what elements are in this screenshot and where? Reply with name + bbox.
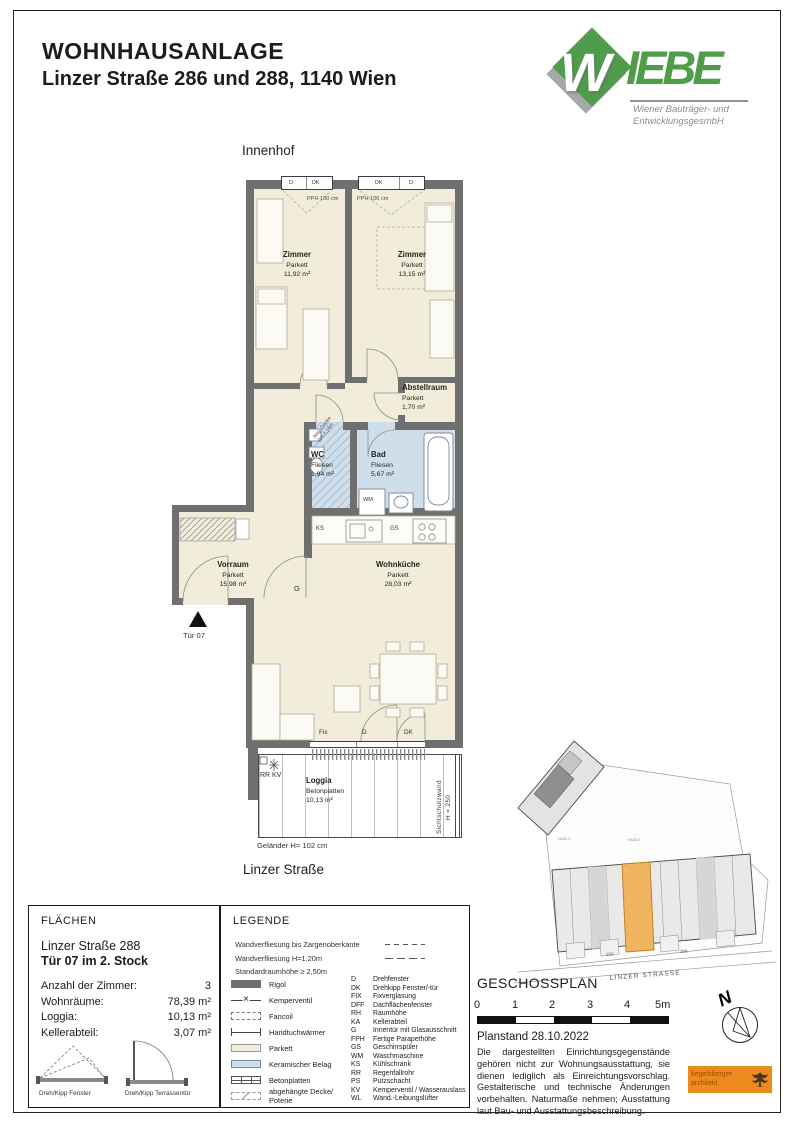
room-label-zimmer1: ZimmerParkett11,92 m² [262,250,332,280]
legende-item-label: Rigol [269,980,286,989]
legende-abbr-value: Innentür mit Glasausschnitt [373,1027,457,1036]
legende-abbr-key: WL [351,1095,373,1104]
compass-n-label: N [714,986,735,1010]
sichtschutz-height-label: H = 250 [445,775,452,820]
flaechen-row-value: 78,39 m² [168,996,211,1008]
legende-abbreviations: DDrehfensterDKDrehkipp Fenster/-türFIXFi… [351,976,469,1104]
legende-abbr-value: Kemperventil / Wasserauslass [373,1087,465,1096]
stamp-line1: hegelsberger [691,1071,751,1080]
towel-symbol-icon [231,1028,261,1036]
site-288-label: 288 [606,952,614,957]
legende-item-label: Parkett [269,1044,292,1053]
room-label-loggia: LoggiaBetonplatten10,13 m² [306,776,358,806]
legende-item: Handtuchwärmer [231,1024,349,1040]
legende-abbr-key: G [351,1027,373,1036]
legende-abbr-key: PS [351,1078,373,1087]
architect-stamp: hegelsberger architekt [688,1066,772,1093]
legende-item: Kemperventil [231,992,349,1008]
flaechen-row: Wohnräume:78,39 m² [41,996,211,1008]
legende-item: Betonplatten [231,1072,349,1088]
flaechen-title: FLÄCHEN [41,915,97,927]
legende-item: Rigol [231,976,349,992]
legende-abbr-row: FIXFixverglasung [351,993,469,1002]
pph-left-label: PPH 100 cm [307,196,338,202]
legende-abbr-value: Kühlschrank [373,1061,411,1070]
legende-item-label: Kemperventil [269,996,312,1005]
legende-abbr-row: RRRegenfallrohr [351,1070,469,1079]
legende-abbr-row: PSPutzschacht [351,1078,469,1087]
room-label-bad: BadFliesen5,67 m² [371,450,415,480]
ks-label: KS [316,526,324,532]
legende-item-label: Fancoil [269,1012,293,1021]
legende-abbr-row: WMWaschmaschine [351,1053,469,1062]
legende-note-text: Standardraumhöhe ≥ 2,50m [235,967,385,976]
legende-item: Keramischer Belag [231,1056,349,1072]
legende-abbr-key: GS [351,1044,373,1053]
legende-abbr-key: RH [351,1010,373,1019]
room-label-abstellraum: AbstellraumParkett1,70 m² [402,383,460,413]
door-symbol-caption: Dreh/Kipp Terrassentür [125,1090,191,1097]
legende-abbr-key: DFF [351,1002,373,1011]
room-label-zimmer2: ZimmerParkett13,15 m² [377,250,447,280]
tuer07-label: Tür 07 [183,631,205,640]
parkett-symbol-icon [231,1044,261,1052]
legende-item-label: Keramischer Belag [269,1060,331,1069]
legende-abbr-key: D [351,976,373,985]
legende-abbr-key: KS [351,1061,373,1070]
legende-abbr-row: RHRaumhöhe [351,1010,469,1019]
wm-label: WM [363,497,373,503]
beton-symbol-icon [231,1076,261,1084]
scale-tick-label: 2 [549,999,555,1011]
gelaender-label: Geländer H= 102 cm [257,841,327,850]
legende-item-label: abgehängte Decke/ Poterie [269,1087,349,1105]
legende-abbr-row: WLWand.-Leibungslüfter [351,1095,469,1104]
gs-label: GS [390,526,399,532]
loggia-door-d-label: D [362,729,367,736]
flaechen-row-label: Anzahl der Zimmer: [41,980,137,992]
flaechen-row-value: 10,13 m² [168,1011,211,1023]
flaechen-unit: Tür 07 im 2. Stock [41,954,148,968]
legende-abbr-key: FPH [351,1036,373,1045]
room-label-wc: WCFliesen1,94 m² [311,450,351,480]
flaechen-row-label: Kellerabteil: [41,1027,98,1039]
eagle-icon [751,1071,769,1088]
legende-abbr-value: Fixverglasung [373,993,416,1002]
rigol-symbol-icon [231,980,261,988]
legende-abbr-row: KSKühlschrank [351,1061,469,1070]
legende-abbr-value: Dachflächenfenster [373,1002,432,1011]
legende-note-dash-icon [385,958,425,959]
scale-tick-label: 3 [587,999,593,1011]
room-label-vorraum: VorraumParkett15,98 m² [200,560,266,590]
flaechen-row-value: 3 [205,980,211,992]
legende-abbr-row: FPHFertige Parapethöhe [351,1036,469,1045]
scale-tick-label: 4 [624,999,630,1011]
entrance-marker-icon [189,611,207,627]
legende-abbr-row: KVKemperventil / Wasserauslass [351,1087,469,1096]
scale-tick-label: 0 [474,999,480,1011]
legende-abbr-value: Kellerabteil [373,1019,407,1028]
legende-abbr-key: KV [351,1087,373,1096]
flaechen-box: FLÄCHEN Linzer Straße 288 Tür 07 im 2. S… [28,905,220,1108]
legende-abbr-row: GInnentür mit Glasausschnitt [351,1027,469,1036]
ceiling-symbol-icon [231,1092,261,1100]
legende-abbr-value: Putzschacht [373,1078,411,1087]
legende-abbr-value: Drehfenster [373,976,409,985]
legende-abbr-value: Fertige Parapethöhe [373,1036,436,1045]
site-street-label: LINZER STRASSE [610,969,681,982]
rr-kv-label: RR KV [260,772,281,779]
legende-item-label: Betonplatten [269,1076,311,1085]
geschossplan-title: GESCHOSSPLAN [477,975,598,991]
loggia-door-fix-label: Fix [319,729,328,736]
legende-item: abgehängte Decke/ Poterie [231,1088,349,1104]
legende-item: Parkett [231,1040,349,1056]
pph-right-label: PPH 106 cm [357,196,388,202]
scale-tick-label: 5m [655,999,670,1011]
window-symbol-caption: Dreh/Kipp Fenster [39,1090,91,1097]
legende-note-text: Wandverfliesung H=1,20m [235,954,385,963]
legende-abbr-key: WM [351,1053,373,1062]
planstand-label: Planstand 28.10.2022 [477,1031,589,1043]
legende-abbr-value: Drehkipp Fenster/-tür [373,985,438,994]
legende-abbr-value: Geschirrspüler [373,1044,418,1053]
stamp-line2: architekt [691,1080,751,1089]
window-symbol-icon [35,1038,111,1088]
flaechen-row-label: Loggia: [41,1011,77,1023]
fancoil-symbol-icon [231,1012,261,1020]
legende-title: LEGENDE [233,915,290,927]
door-symbol-icon [125,1036,197,1088]
legende-item: Fancoil [231,1008,349,1024]
flaechen-address: Linzer Straße 288 [41,939,140,953]
legende-note-dash-icon [385,944,425,945]
legende-notes: Wandverfliesung bis ZargenoberkanteWandv… [235,938,457,979]
flaechen-row: Loggia:10,13 m² [41,1011,211,1023]
legende-abbr-value: Raumhöhe [373,1010,407,1019]
legende-note-text: Wandverfliesung bis Zargenoberkante [235,940,385,949]
scale-ticks: 012345m [477,999,671,1011]
loggia-door-dk-label: DK [404,729,413,736]
glass-door-label: G [294,584,300,593]
legende-abbr-value: Waschmaschine [373,1053,423,1062]
valve-symbol-icon [231,996,261,1004]
legende-abbr-key: KA [351,1019,373,1028]
legende-item-label: Handtuchwärmer [269,1028,325,1037]
scale-tick-label: 1 [512,999,518,1011]
legende-abbr-value: Wand.-Leibungslüfter [373,1095,438,1104]
legende-abbr-value: Regenfallrohr [373,1070,414,1079]
disclaimer-text: Die dargestellten Einrichtungsgegenständ… [477,1047,670,1118]
flaechen-rows: Anzahl der Zimmer:3Wohnräume:78,39 m²Log… [41,980,211,1042]
legende-abbr-row: DDrehfenster [351,976,469,985]
legende-abbr-row: KAKellerabteil [351,1019,469,1028]
plan-sheet: WOHNHAUSANLAGE Linzer Straße 286 und 288… [0,0,794,1123]
site-286-label: 286 [680,949,688,954]
room-label-wohnkueche: WohnkücheParkett28,03 m² [363,560,433,590]
legende-abbr-row: DFFDachflächenfenster [351,1002,469,1011]
legende-abbr-key: DK [351,985,373,994]
north-compass-icon: N [702,980,786,1054]
sichtschutzwand-label: Sichtschutzwand [436,758,443,834]
legende-items: RigolKemperventilFancoilHandtuchwärmerPa… [231,976,349,1104]
legende-abbr-key: FIX [351,993,373,1002]
legende-abbr-key: RR [351,1070,373,1079]
legende-note: Wandverfliesung H=1,20m [235,952,457,966]
legende-abbr-row: GSGeschirrspüler [351,1044,469,1053]
legende-abbr-row: DKDrehkipp Fenster/-tür [351,985,469,994]
legende-box: LEGENDE Wandverfliesung bis Zargenoberka… [220,905,470,1108]
legende-note: Wandverfliesung bis Zargenoberkante [235,938,457,952]
scale-bar [477,1016,669,1024]
flaechen-row-label: Wohnräume: [41,996,104,1008]
ceramic-symbol-icon [231,1060,261,1068]
flaechen-row: Anzahl der Zimmer:3 [41,980,211,992]
